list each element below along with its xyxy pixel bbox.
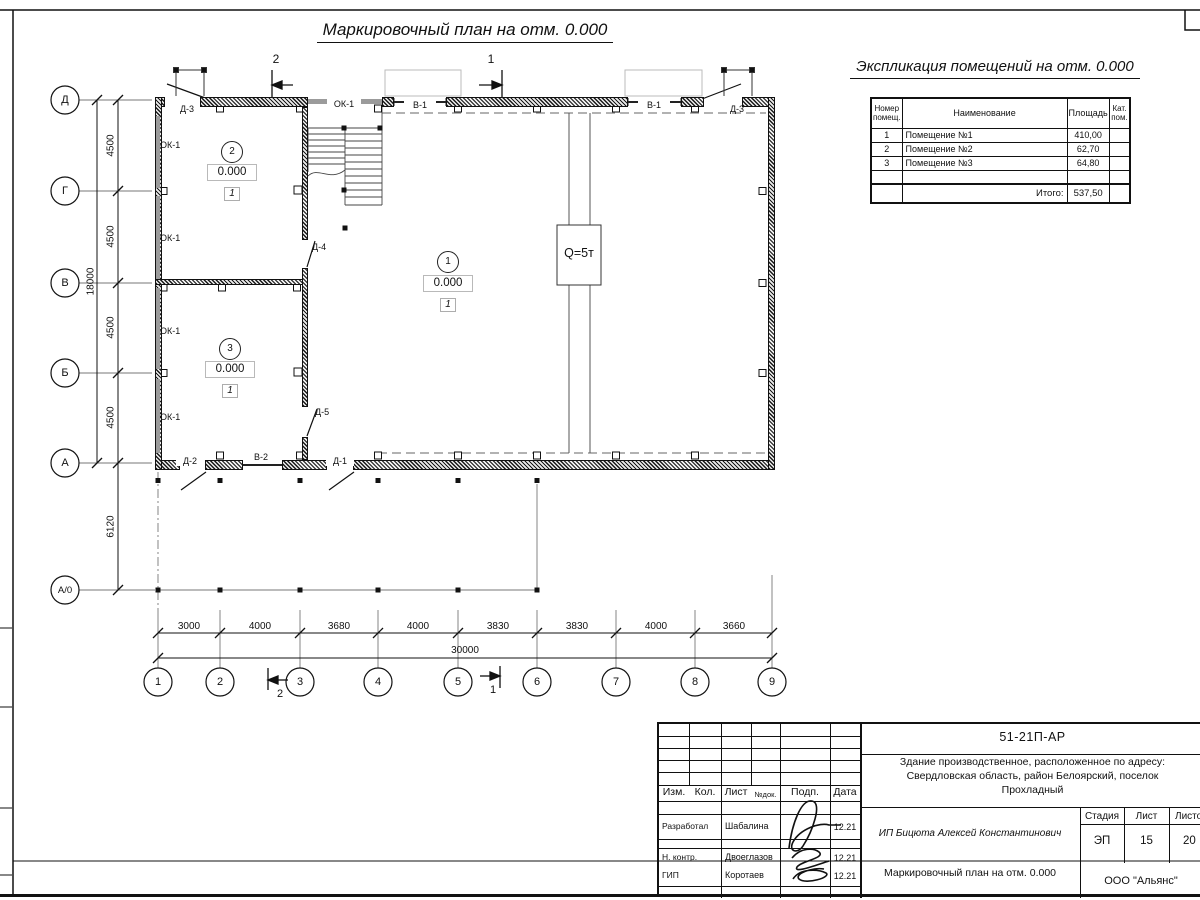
room-elevation: 0.000 xyxy=(205,361,255,378)
table-row: 2 Помещение №2 62,70 xyxy=(871,142,1130,156)
wall-partition xyxy=(155,279,308,285)
wall-right xyxy=(768,97,775,470)
axis-label-4: 4 xyxy=(364,676,392,688)
room-name: Помещение №2 xyxy=(902,142,1067,156)
title-block: Изм. Кол. Лист №док. Подп. Дата Разработ… xyxy=(657,722,1200,896)
axis-grid xyxy=(79,100,772,668)
section-label-1: 1 xyxy=(485,684,501,696)
gate-label: В-1 xyxy=(404,100,436,110)
dim-4500: 4500 xyxy=(106,123,117,169)
dim-4000: 4000 xyxy=(388,621,448,632)
wall-bottom xyxy=(205,460,243,470)
room-mark: 1 xyxy=(224,187,240,201)
tb-date: 12.21 xyxy=(830,820,860,835)
tb-name: Коротаев xyxy=(725,868,780,883)
axis-label-7: 7 xyxy=(602,676,630,688)
tb-role: ГИП xyxy=(662,868,720,883)
col-header-area: Площадь xyxy=(1067,98,1109,128)
axis-label-d: Д xyxy=(51,94,79,106)
room-area: 64,80 xyxy=(1067,156,1109,170)
wall-top xyxy=(200,97,308,107)
door-label: Д-4 xyxy=(312,242,326,252)
col-header-name: Наименование xyxy=(902,98,1067,128)
room-name: Помещение №1 xyxy=(902,128,1067,142)
table-row-total: Итого: 537,50 xyxy=(871,184,1130,203)
canopy-posts xyxy=(156,478,540,593)
tb-company: ООО "Альянс" xyxy=(1080,874,1200,889)
axis-label-a: А xyxy=(51,457,79,469)
axis-label-9: 9 xyxy=(758,676,786,688)
axis-label-5: 5 xyxy=(444,676,472,688)
tb-col-data: Дата xyxy=(830,785,860,800)
room-cat xyxy=(1109,142,1130,156)
table-row: 3 Помещение №3 64,80 xyxy=(871,156,1130,170)
axis-label-g: Г xyxy=(51,185,79,197)
tb-col-podp: Подп. xyxy=(780,785,830,800)
section-label-1: 1 xyxy=(483,52,499,66)
door-label: Д-5 xyxy=(315,407,329,417)
tb-address-line: Прохладный xyxy=(862,784,1200,797)
tb-sheets-value: 20 xyxy=(1169,834,1200,849)
tb-role: Н. контр. xyxy=(662,850,720,865)
gate-label: В-2 xyxy=(247,452,275,462)
dim-3830: 3830 xyxy=(468,621,528,632)
tb-stage-value: ЭП xyxy=(1080,834,1124,849)
entrance-canopies xyxy=(174,68,755,97)
axis-label-8: 8 xyxy=(681,676,709,688)
window-label: ОК-1 xyxy=(160,233,180,243)
door-label: Д-2 xyxy=(176,456,204,466)
tb-doc-code: 51-21П-АР xyxy=(860,730,1200,745)
staircase xyxy=(308,107,383,231)
tb-col-ndok: №док. xyxy=(751,787,780,802)
dim-4500: 4500 xyxy=(106,305,117,351)
dim-4000: 4000 xyxy=(626,621,686,632)
dim-4500: 4500 xyxy=(106,395,117,441)
wall-inner xyxy=(302,437,308,460)
room-number-bubble: 1 xyxy=(437,251,459,273)
room-area: 62,70 xyxy=(1067,142,1109,156)
wall-inner xyxy=(302,268,308,407)
tb-address-line: Здание производственное, расположенное п… xyxy=(862,756,1200,769)
tb-name: Шабалина xyxy=(725,819,780,834)
tb-col-kol: Кол. xyxy=(689,785,721,800)
room-elevation: 0.000 xyxy=(423,275,473,292)
total-area: 537,50 xyxy=(1067,184,1109,203)
drawing-sheet: Маркировочный план на отм. 0.000 Эксплик… xyxy=(0,0,1200,900)
dim-3000: 3000 xyxy=(159,621,219,632)
tb-address-line: Свердловская область, район Белоярский, … xyxy=(862,770,1200,783)
page-title: Маркировочный план на отм. 0.000 xyxy=(317,20,614,43)
dim-3830: 3830 xyxy=(547,621,607,632)
tb-name: Двоеглазов xyxy=(725,850,780,865)
tb-role: Разработал xyxy=(662,819,720,834)
dim-4000: 4000 xyxy=(230,621,290,632)
axis-label-b: Б xyxy=(51,367,79,379)
page-title-wrap: Маркировочный план на отм. 0.000 xyxy=(280,20,650,40)
axis-label-6: 6 xyxy=(523,676,551,688)
tb-col-izm: Изм. xyxy=(659,785,689,800)
wall-bottom xyxy=(282,460,327,470)
window-label: ОК-1 xyxy=(327,99,361,109)
room-elevation: 0.000 xyxy=(207,164,257,181)
dim-3680: 3680 xyxy=(309,621,369,632)
total-label: Итого: xyxy=(902,184,1067,203)
room-number-bubble: 2 xyxy=(221,141,243,163)
tb-client: ИП Бицюта Алексей Константинович xyxy=(864,826,1076,841)
dim-4500: 4500 xyxy=(106,214,117,260)
tb-date: 12.21 xyxy=(830,851,860,866)
room-cat xyxy=(1109,156,1130,170)
table-row-empty xyxy=(871,170,1130,184)
tb-col-list: Лист xyxy=(721,785,751,800)
section-label-2: 2 xyxy=(272,688,288,700)
axis-label-a0: А/0 xyxy=(51,585,79,597)
door-label: Д-3 xyxy=(172,104,202,114)
wall-top xyxy=(382,97,394,107)
room-mark: 1 xyxy=(222,384,238,398)
axis-label-1: 1 xyxy=(144,676,172,688)
door-label: Д-1 xyxy=(326,456,354,466)
wall-top xyxy=(681,97,704,107)
room-number-bubble: 3 xyxy=(219,338,241,360)
crane-capacity: Q=5т xyxy=(558,248,600,258)
axis-label-v: В xyxy=(51,277,79,289)
tb-stage-label: Стадия xyxy=(1080,809,1124,824)
explication-title-wrap: Экспликация помещений на отм. 0.000 xyxy=(840,58,1150,75)
col-header-cat: Кат. пом. xyxy=(1109,98,1130,128)
wall-top xyxy=(446,97,628,107)
door-label: Д-3 xyxy=(722,104,752,114)
window-label: ОК-1 xyxy=(160,326,180,336)
window-left xyxy=(156,116,160,188)
room-mark: 1 xyxy=(440,298,456,312)
room-area: 410,00 xyxy=(1067,128,1109,142)
tb-date: 12.21 xyxy=(830,869,860,884)
room-num: 1 xyxy=(871,128,902,142)
dim-3660: 3660 xyxy=(704,621,764,632)
dim-30000: 30000 xyxy=(435,645,495,656)
tb-sheet-value: 15 xyxy=(1124,834,1169,849)
room-num: 3 xyxy=(871,156,902,170)
window-label: ОК-1 xyxy=(160,412,180,422)
room-name: Помещение №3 xyxy=(902,156,1067,170)
tb-sheet-title: Маркировочный план на отм. 0.000 xyxy=(870,867,1070,880)
dimension-lines xyxy=(92,95,777,663)
window-label: ОК-1 xyxy=(160,140,180,150)
table-row: 1 Помещение №1 410,00 xyxy=(871,128,1130,142)
room-cat xyxy=(1109,128,1130,142)
room-num: 2 xyxy=(871,142,902,156)
wall-bottom xyxy=(353,460,775,470)
explication-title: Экспликация помещений на отм. 0.000 xyxy=(850,58,1139,79)
dim-6120: 6120 xyxy=(106,504,117,550)
wall-inner xyxy=(302,107,308,240)
axis-label-2: 2 xyxy=(206,676,234,688)
tb-sheets-label: Листов xyxy=(1169,809,1200,824)
dim-18000: 18000 xyxy=(86,259,97,305)
porches xyxy=(385,70,702,96)
tb-sheet-label: Лист xyxy=(1124,809,1169,824)
section-label-2: 2 xyxy=(268,52,284,66)
axis-label-3: 3 xyxy=(286,676,314,688)
col-header-num: Номер помещ. xyxy=(871,98,902,128)
gate-label: В-1 xyxy=(638,100,670,110)
explication-table: Номер помещ. Наименование Площадь Кат. п… xyxy=(870,97,1131,204)
